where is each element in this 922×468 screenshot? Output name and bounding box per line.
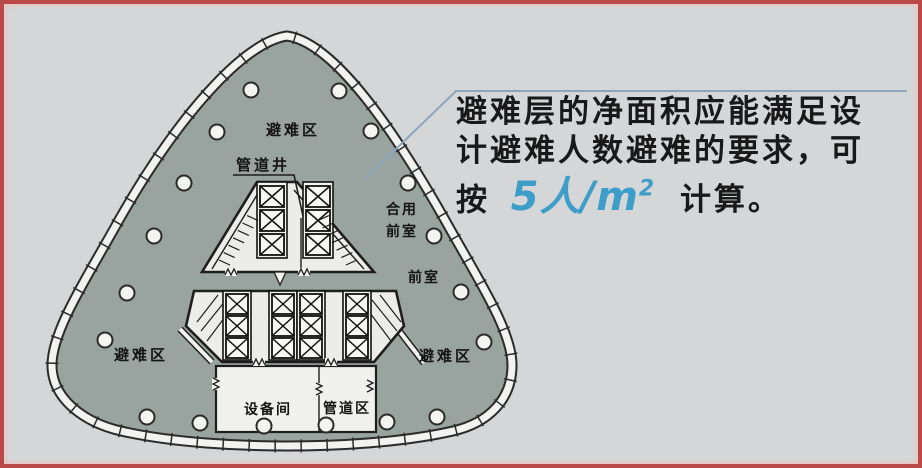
label-shared-front-room-line1: 合用 xyxy=(386,201,418,218)
label-refuge-area-left: 避难区 xyxy=(114,346,168,364)
label-pipe-zone: 管道区 xyxy=(323,400,371,417)
annotation-line-3: 按 5人/m2 计算。 xyxy=(456,170,918,219)
label-shared-front-room-line2: 前室 xyxy=(386,223,418,240)
annotation-line3-prefix: 按 xyxy=(456,182,490,217)
annotation-block: 避难层的净面积应能满足设 计避难人数避难的要求，可 按 5人/m2 计算。 xyxy=(456,92,918,219)
image-frame: 避难区 避难区 避难区 管道井 合用 前室 前室 设备间 管道区 避难层的净面积… xyxy=(0,0,922,468)
label-equipment-room: 设备间 xyxy=(244,401,292,418)
annotation-line3-suffix: 计算。 xyxy=(680,182,782,217)
label-refuge-area-top: 避难区 xyxy=(266,121,320,139)
floor-plan-figure: 避难区 避难区 避难区 管道井 合用 前室 前室 设备间 管道区 xyxy=(4,4,922,468)
annotation-line-1: 避难层的净面积应能满足设 xyxy=(456,92,918,131)
label-pipe-shaft: 管道井 xyxy=(236,156,290,174)
density-value: 5人/m2 xyxy=(511,174,655,220)
label-front-room: 前室 xyxy=(408,269,440,286)
label-refuge-area-right: 避难区 xyxy=(419,347,473,365)
annotation-line-2: 计避难人数避难的要求，可 xyxy=(456,131,918,170)
lower-elevator-core xyxy=(186,291,404,362)
bottom-rooms xyxy=(216,366,376,432)
